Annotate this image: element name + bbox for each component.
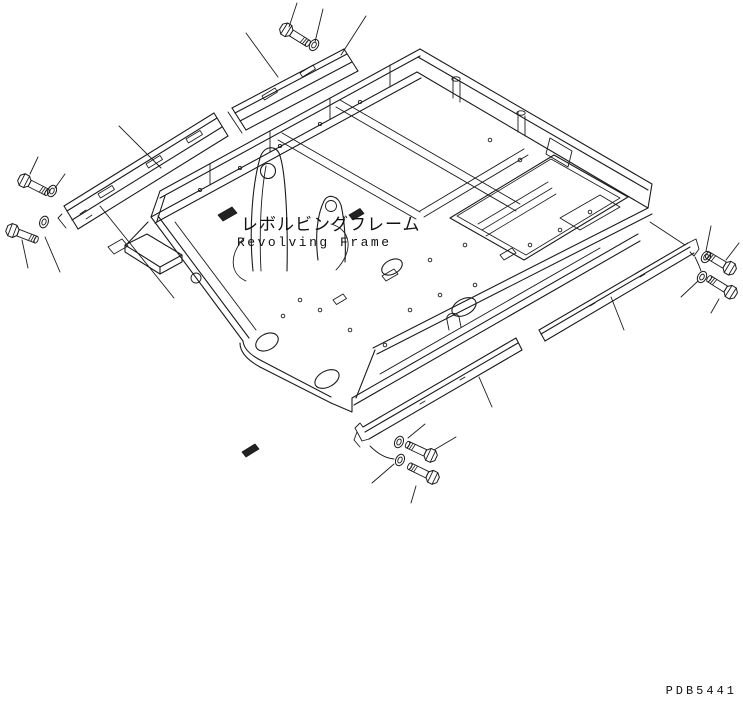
detached-rail-rear xyxy=(228,49,358,133)
bolt-bottom-1 xyxy=(403,438,439,464)
bolt-top xyxy=(278,21,313,50)
part-title-english: Revolving Frame xyxy=(237,235,457,250)
parts-catalog-page: レボルビングフレーム Revolving Frame PDB5441 xyxy=(0,0,743,706)
washer-bottom-1 xyxy=(393,435,406,449)
bolt-right-2 xyxy=(704,272,739,301)
washer-left-2 xyxy=(38,215,50,229)
detached-rail-front xyxy=(58,113,228,229)
side-strip-right xyxy=(539,239,699,341)
bolt-right-1 xyxy=(703,249,738,277)
washer-right-1 xyxy=(699,250,712,265)
bolt-left-1 xyxy=(16,172,52,199)
main-frame xyxy=(108,49,652,457)
side-strip-bottom xyxy=(354,338,522,447)
drawing-code: PDB5441 xyxy=(666,684,737,698)
bolt-bottom-2 xyxy=(405,460,441,486)
revolving-frame-diagram xyxy=(0,0,743,706)
washer-bottom-2 xyxy=(394,453,407,467)
part-title-japanese: レボルビングフレーム xyxy=(241,210,461,235)
